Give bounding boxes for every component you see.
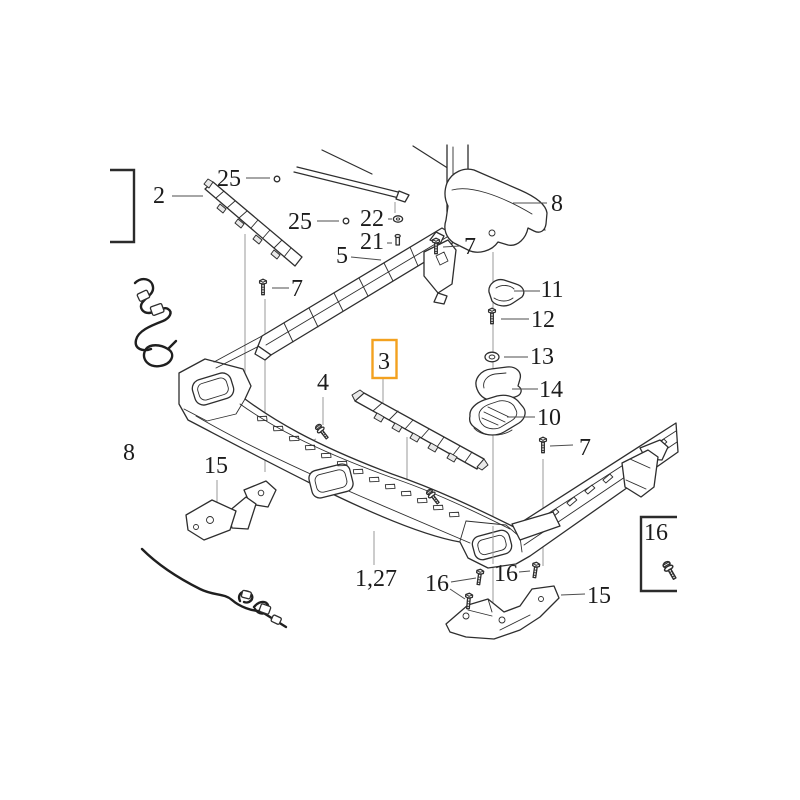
label-16-inset[interactable]: 16 bbox=[644, 520, 668, 546]
wiring-harness-upper bbox=[135, 279, 176, 366]
screw-7-left bbox=[260, 279, 267, 295]
label-25-b[interactable]: 25 bbox=[288, 209, 312, 235]
label-8-top[interactable]: 8 bbox=[551, 191, 563, 217]
wiring-harness-lower bbox=[142, 549, 286, 627]
part-12-screw bbox=[489, 308, 496, 324]
label-15-right[interactable]: 15 bbox=[587, 583, 611, 609]
label-8-left[interactable]: 8 bbox=[123, 440, 135, 466]
label-25-a[interactable]: 25 bbox=[217, 166, 241, 192]
label-3-selected[interactable]: 3 bbox=[378, 349, 390, 375]
trim-strip bbox=[294, 167, 409, 202]
label-5[interactable]: 5 bbox=[336, 243, 348, 269]
label-10[interactable]: 10 bbox=[537, 405, 561, 431]
clip-25-b bbox=[343, 218, 349, 224]
screw-16-inset bbox=[661, 560, 678, 581]
label-2[interactable]: 2 bbox=[153, 183, 165, 209]
label-16-b[interactable]: 16 bbox=[494, 561, 518, 587]
part-1-27-frame bbox=[179, 359, 678, 568]
label-15-left[interactable]: 15 bbox=[204, 453, 228, 479]
label-16-a[interactable]: 16 bbox=[425, 571, 449, 597]
clip-25-a bbox=[274, 176, 280, 182]
screw-7-right bbox=[540, 437, 547, 453]
screw-4 bbox=[314, 423, 330, 441]
part-5-rail bbox=[214, 228, 456, 368]
label-14[interactable]: 14 bbox=[539, 377, 563, 403]
label-11[interactable]: 11 bbox=[540, 277, 563, 303]
part-15-bracket-left bbox=[186, 481, 276, 540]
label-7-top[interactable]: 7 bbox=[464, 234, 476, 260]
part-8-cover bbox=[445, 169, 547, 252]
label-12[interactable]: 12 bbox=[531, 307, 555, 333]
parts-diagram-canvas: 2 25 25 22 21 5 7 8 7 11 12 13 14 10 3 4… bbox=[0, 0, 800, 800]
part-3-trim-moulding bbox=[352, 390, 488, 470]
inset-box-left-partial bbox=[110, 170, 134, 242]
part-10-grommet bbox=[470, 395, 525, 435]
label-13[interactable]: 13 bbox=[530, 344, 554, 370]
label-1-27[interactable]: 1,27 bbox=[355, 566, 397, 592]
part-11-clip bbox=[489, 280, 524, 306]
screw-16-c bbox=[531, 562, 540, 578]
label-7-right[interactable]: 7 bbox=[579, 435, 591, 461]
label-4[interactable]: 4 bbox=[317, 370, 329, 396]
part-15-bracket-right bbox=[446, 586, 559, 639]
part-13-washer bbox=[485, 352, 499, 362]
screw-16-a bbox=[475, 569, 484, 585]
part-21-pin bbox=[395, 235, 400, 246]
label-21[interactable]: 21 bbox=[360, 229, 384, 255]
label-7-left[interactable]: 7 bbox=[291, 276, 303, 302]
part-22-washer bbox=[393, 216, 402, 222]
